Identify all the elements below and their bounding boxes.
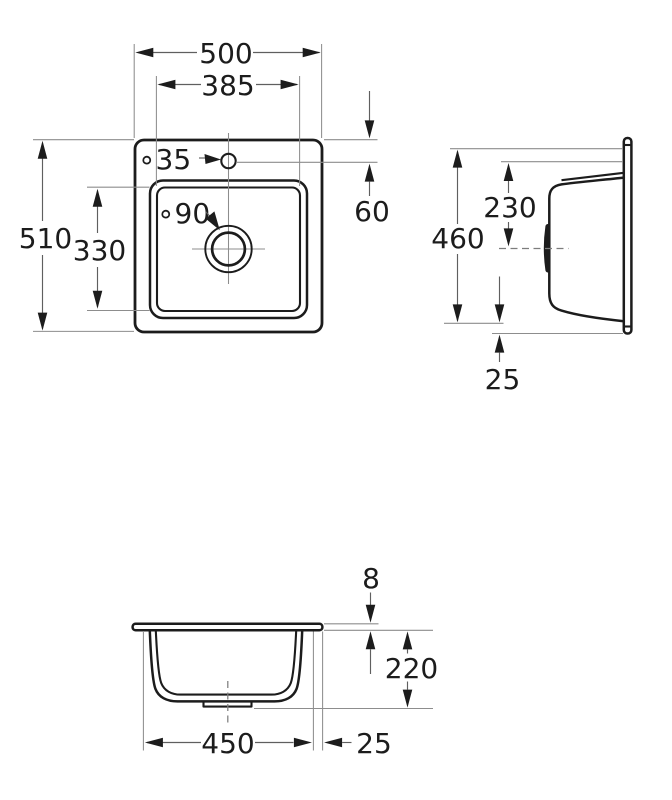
arrowhead-left [157, 80, 175, 90]
dim-cutout-depth-460: 460 [431, 149, 623, 324]
bowl-outer-front [150, 631, 302, 702]
dim-label-460: 460 [431, 222, 484, 255]
dim-label-25-front: 25 [356, 727, 392, 760]
bowl-inner-front [156, 631, 296, 695]
arrowhead-left [135, 48, 153, 58]
dim-label-450: 450 [201, 727, 254, 760]
arrowhead-down [403, 690, 413, 708]
label-drain-diameter: ∘90 [157, 197, 220, 230]
arrowhead-up [366, 631, 376, 649]
label-tap-hole-diameter: ∘35 [138, 143, 221, 176]
arrowhead-right [294, 738, 312, 748]
arrowhead-up [453, 150, 463, 168]
dim-label-510: 510 [19, 222, 72, 255]
dim-bowl-height-220: 220 [254, 631, 438, 708]
dim-label-230: 230 [483, 191, 536, 224]
sink-rim-edge-side [624, 138, 632, 334]
arrowhead-up [38, 141, 48, 159]
dim-label-385: 385 [201, 69, 254, 102]
dim-bottom-offset-25-side: 25 [485, 277, 623, 397]
arrowhead-right [281, 80, 299, 90]
dim-label-60: 60 [354, 195, 390, 228]
bowl-profile-side [549, 178, 624, 322]
dim-label-500: 500 [199, 37, 252, 70]
arrowhead-up [403, 631, 413, 649]
arrowhead-up [504, 163, 514, 181]
plan-view: 500 385 510 [19, 37, 390, 332]
arrowhead-down [93, 291, 103, 309]
dim-label-25-side: 25 [485, 363, 521, 396]
arrowhead-left [145, 738, 163, 748]
arrowhead-right [303, 48, 321, 58]
dim-label-220: 220 [385, 652, 438, 685]
arrowhead-down [38, 313, 48, 331]
arrowhead-left [324, 738, 342, 748]
dim-rim-overhang-25-front: 25 [324, 727, 392, 760]
front-view: 8 220 450 [133, 562, 439, 760]
arrowhead-down [365, 120, 375, 138]
rim-bar-front [133, 624, 323, 631]
dim-label-8: 8 [362, 562, 380, 595]
side-view: 460 230 25 [431, 138, 631, 396]
dim-label-dia90: ∘90 [157, 197, 210, 230]
dim-tap-hole-offset-60: 60 [236, 91, 390, 228]
arrowhead-down [495, 304, 505, 322]
arrowhead-up [93, 189, 103, 207]
arrowhead-up [365, 164, 375, 182]
arrowhead-down [453, 304, 463, 322]
arrowhead-down [366, 605, 376, 623]
leader-arrowhead [205, 154, 222, 164]
dim-bowl-depth-330: 330 [73, 187, 150, 310]
technical-drawing-page: 500 385 510 [0, 0, 672, 800]
dim-label-dia35: ∘35 [138, 143, 191, 176]
arrowhead-up [495, 335, 505, 353]
arrowhead-down [504, 228, 514, 246]
sink-dimension-drawing: 500 385 510 [0, 0, 672, 800]
dim-label-330: 330 [73, 234, 126, 267]
